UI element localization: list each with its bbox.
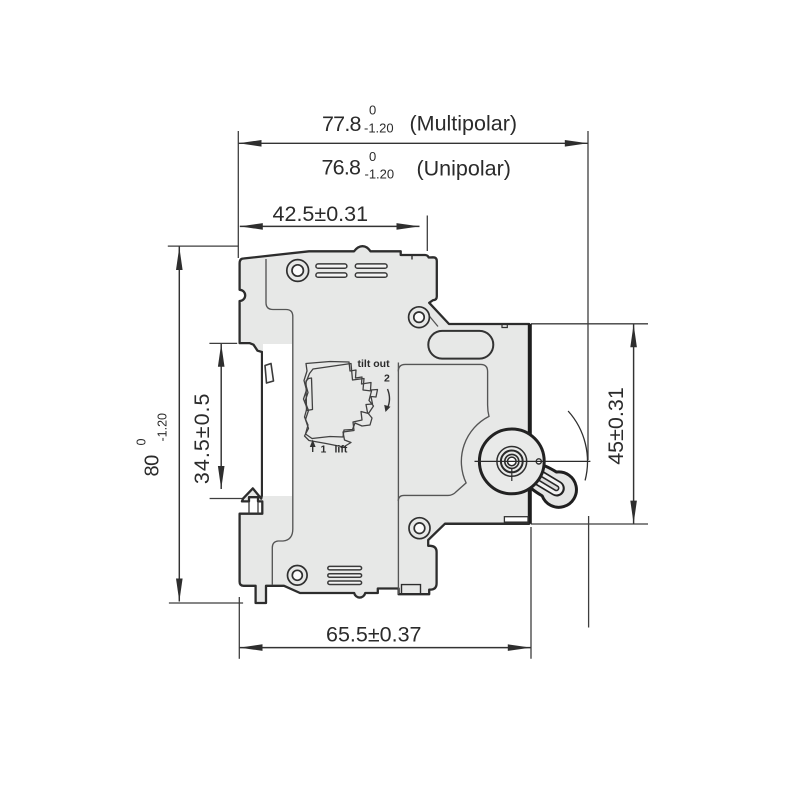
svg-text:42.5±0.31: 42.5±0.31 (273, 202, 369, 226)
svg-text:(Multipolar): (Multipolar) (410, 112, 518, 136)
svg-text:-1.20: -1.20 (364, 120, 394, 135)
svg-text:-1.20: -1.20 (156, 413, 170, 442)
svg-text:0: 0 (135, 439, 149, 446)
svg-text:34.5±0.5: 34.5±0.5 (190, 393, 214, 485)
svg-text:0: 0 (369, 103, 376, 118)
svg-text:80: 80 (142, 455, 164, 477)
svg-text:lift: lift (335, 444, 348, 456)
svg-text:45±0.31: 45±0.31 (604, 387, 628, 465)
svg-text:76.8: 76.8 (322, 156, 361, 180)
svg-text:0: 0 (369, 149, 376, 164)
svg-text:65.5±0.37: 65.5±0.37 (326, 622, 422, 646)
svg-text:2: 2 (384, 373, 390, 385)
svg-text:77.8: 77.8 (322, 112, 361, 136)
svg-text:(Unipolar): (Unipolar) (417, 157, 511, 181)
svg-text:-1.20: -1.20 (365, 166, 395, 181)
svg-text:tilt out: tilt out (358, 358, 391, 370)
svg-text:1: 1 (321, 444, 327, 456)
